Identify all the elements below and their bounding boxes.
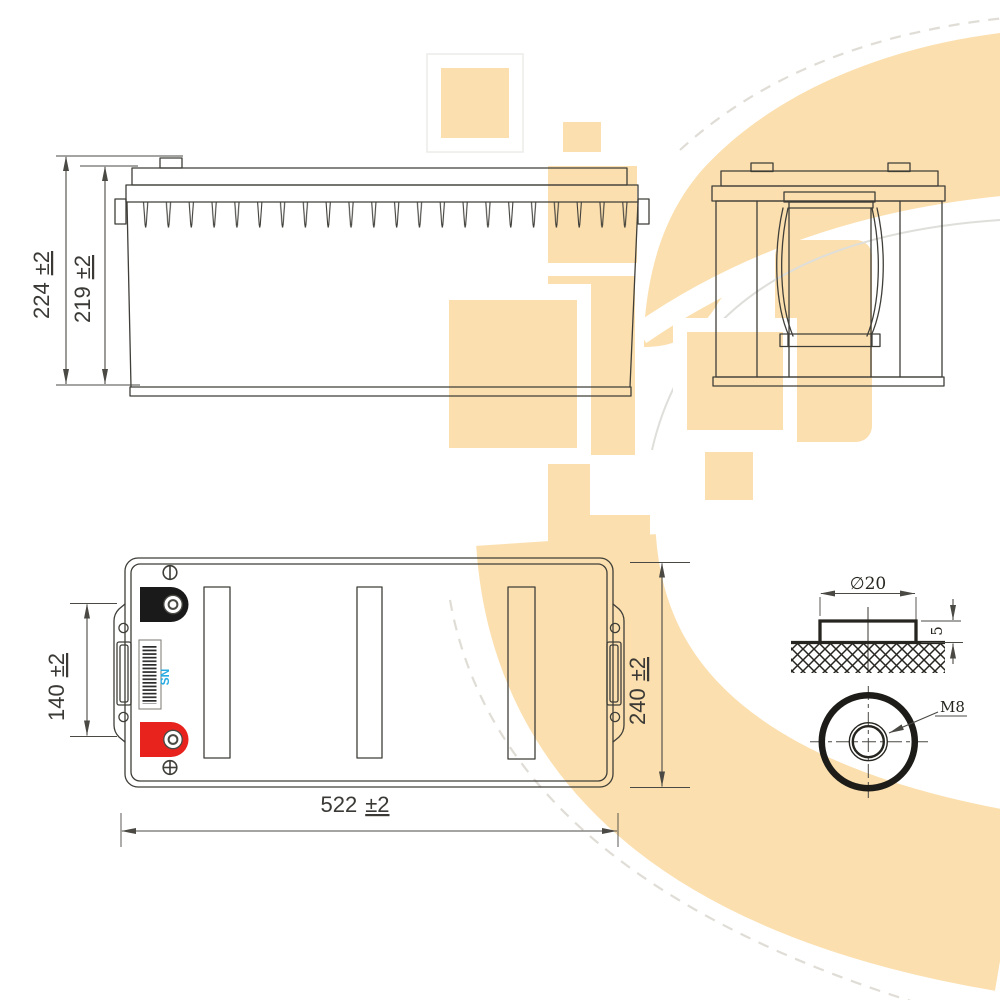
front-cooling-fins bbox=[135, 202, 637, 232]
terminal-height-label: 5 bbox=[928, 626, 946, 636]
top-dim-terminal-pitch-label: 140±2 bbox=[44, 653, 69, 721]
front-body-left-edge bbox=[127, 202, 131, 387]
battery-dimension-drawing: 224±2 219±2 bbox=[0, 0, 1000, 1000]
serial-number-label: SN bbox=[158, 669, 172, 686]
top-slot-2 bbox=[357, 587, 382, 758]
top-left-bracket-slot-inner bbox=[120, 645, 128, 702]
top-left-screw-upper bbox=[119, 623, 128, 632]
positive-terminal-hole bbox=[169, 735, 178, 744]
watermark-logo bbox=[427, 18, 1000, 1000]
negative-terminal-hole bbox=[169, 600, 178, 609]
watermark-square-d bbox=[449, 300, 577, 448]
front-left-ear bbox=[115, 199, 126, 224]
front-dim-height-case-label: 219±2 bbox=[70, 255, 95, 323]
watermark-square-f bbox=[705, 452, 753, 500]
negative-polarity-symbol bbox=[163, 566, 177, 580]
watermark-square-e bbox=[687, 332, 783, 430]
top-slot-1 bbox=[204, 587, 230, 758]
front-dim-height-total-label: 224±2 bbox=[29, 251, 54, 319]
terminal-diameter-label: ∅20 bbox=[850, 574, 886, 594]
positive-polarity-symbol bbox=[163, 761, 177, 775]
top-dim-width-label: 240±2 bbox=[625, 657, 650, 725]
barcode-stripes bbox=[143, 645, 157, 704]
watermark-square-a bbox=[441, 68, 509, 138]
top-left-bracket-slot bbox=[117, 642, 131, 705]
terminal-hatch-area bbox=[791, 644, 945, 673]
top-dim-length-label: 522±2 bbox=[320, 792, 389, 817]
top-left-screw-lower bbox=[119, 712, 128, 721]
terminal-thread-label: M8 bbox=[940, 698, 965, 716]
front-lid-tab bbox=[160, 158, 182, 168]
technical-drawing-canvas: 224±2 219±2 bbox=[0, 0, 1000, 1000]
